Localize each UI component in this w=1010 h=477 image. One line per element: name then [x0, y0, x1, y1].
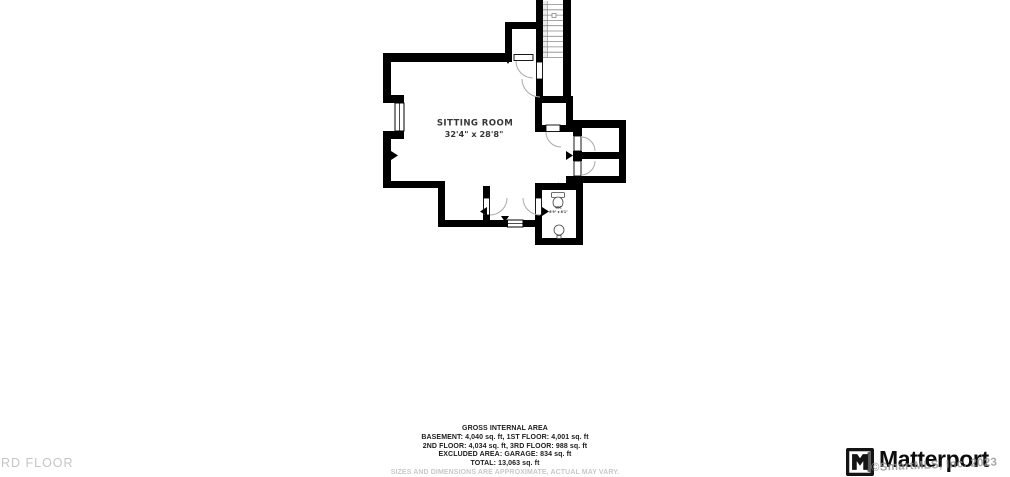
floor-level-label: 3RD FLOOR — [0, 456, 74, 470]
window-bottom — [508, 220, 524, 227]
wc-label: WC — [555, 206, 562, 210]
summary-line: BASEMENT: 4,040 sq. ft, 1ST FLOOR: 4,001… — [305, 434, 705, 443]
floor-plan: SITTING ROOM 32'4" x 28'8" WC 6'9" x 8'1… — [0, 0, 1010, 477]
sitting-room-label: SITTING ROOM — [437, 119, 513, 129]
summary-disclaimer: SIZES AND DIMENSIONS ARE APPROXIMATE, AC… — [305, 469, 705, 477]
summary-line: 2ND FLOOR: 4,034 sq. ft, 3RD FLOOR: 988 … — [305, 443, 705, 452]
summary-line: EXCLUDED AREA: GARAGE: 834 sq. ft — [305, 451, 705, 460]
door-arrows — [391, 57, 573, 222]
summary-total: TOTAL: 13,063 sq. ft — [305, 460, 705, 469]
branding: Matterport ©SmartMLS, Inc. 2023 — [845, 446, 1010, 477]
area-summary: GROSS INTERNAL AREA BASEMENT: 4,040 sq. … — [305, 425, 705, 477]
summary-title: GROSS INTERNAL AREA — [305, 425, 705, 434]
staircase — [543, 1, 563, 58]
window-left — [395, 103, 404, 131]
sitting-room-dims: 32'4" x 28'8" — [445, 129, 504, 139]
floorplan-page: SITTING ROOM 32'4" x 28'8" WC 6'9" x 8'1… — [0, 0, 1010, 477]
sink-icon — [554, 225, 564, 239]
room-labels: SITTING ROOM 32'4" x 28'8" WC 6'9" x 8'1… — [437, 119, 568, 215]
wc-dims: 6'9" x 8'1" — [549, 210, 568, 214]
